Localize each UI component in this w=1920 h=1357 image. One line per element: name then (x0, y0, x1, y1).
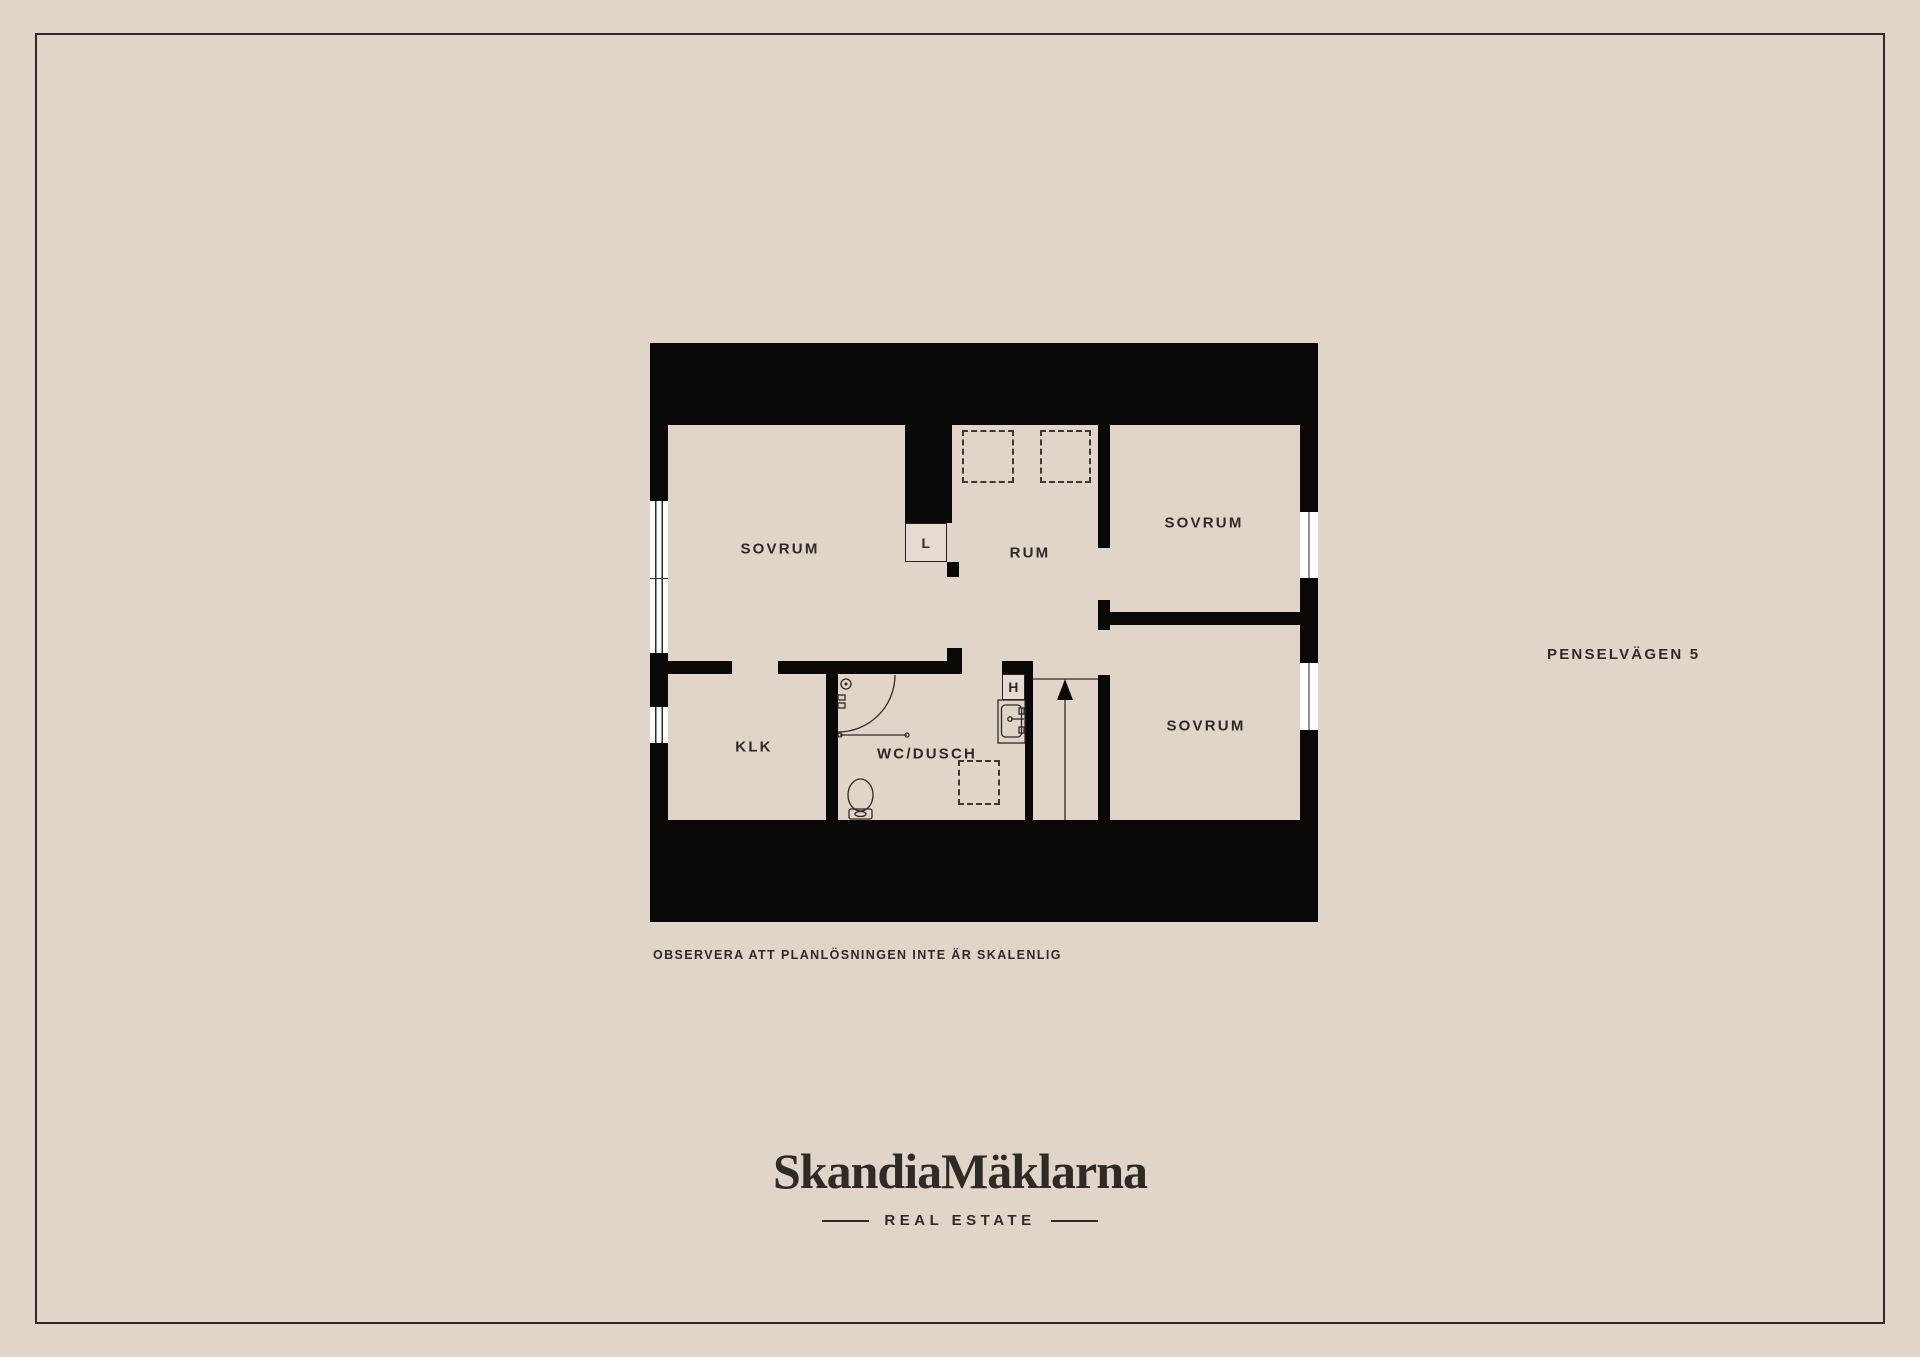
wall-horizontal (650, 661, 732, 674)
wall-horizontal (1002, 661, 1033, 674)
address-title: PENSELVÄGEN 5 (1547, 646, 1700, 663)
wall-wc-stairs (1025, 674, 1033, 820)
wall-stub (947, 562, 959, 577)
room-label-rum: RUM (1010, 545, 1051, 562)
wall-vertical (1098, 425, 1110, 548)
tagline-rule-right (1051, 1220, 1098, 1222)
wall-klk-wc (826, 674, 838, 820)
dashed-area-icon (958, 760, 1000, 805)
wall-left (650, 425, 668, 501)
wall-between-bedrooms (1110, 612, 1300, 625)
brand-tagline-row: REAL ESTATE (0, 1212, 1920, 1229)
dashed-area-icon (1040, 430, 1091, 483)
wall-right (1300, 730, 1318, 820)
floor-plan-page: L H (0, 0, 1920, 1357)
window-icon (1300, 512, 1318, 578)
wall-vertical (1098, 675, 1110, 820)
tagline-rule-left (822, 1220, 869, 1222)
toilet-icon (848, 779, 873, 819)
wall-right (1300, 425, 1318, 512)
room-label-sovrum-ne: SOVRUM (1164, 515, 1243, 532)
window-icon (650, 578, 668, 653)
brand-block: SkandiaMäklarna REAL ESTATE (0, 1146, 1920, 1229)
wall-bottom-band (650, 820, 1318, 922)
room-label-wc-dusch: WC/DUSCH (877, 746, 977, 763)
hall-box: H (1002, 674, 1025, 700)
floor-plan: L H (650, 343, 1318, 922)
brand-tagline: REAL ESTATE (884, 1212, 1035, 1229)
dashed-area-icon (962, 430, 1014, 483)
brand-logo: SkandiaMäklarna (0, 1146, 1920, 1196)
room-label-sovrum-nw: SOVRUM (740, 541, 819, 558)
window-icon (1300, 663, 1318, 730)
window-icon (650, 707, 668, 743)
wall-right (1300, 578, 1318, 663)
hall-label: H (1008, 679, 1019, 695)
wall-left (650, 743, 668, 820)
wall-horizontal (778, 661, 962, 674)
wall-vertical (1098, 600, 1110, 630)
chimney-shaft (905, 425, 952, 523)
sink-icon (998, 700, 1025, 743)
stairs-up-icon (1033, 679, 1098, 820)
window-icon (650, 501, 668, 578)
scale-disclaimer: OBSERVERA ATT PLANLÖSNINGEN INTE ÄR SKAL… (653, 948, 1062, 962)
closet-box: L (905, 523, 947, 562)
wall-top-band (650, 343, 1318, 425)
room-label-klk: KLK (735, 739, 772, 756)
shower-icon (838, 675, 909, 737)
closet-label: L (921, 535, 930, 551)
room-label-sovrum-se: SOVRUM (1166, 718, 1245, 735)
